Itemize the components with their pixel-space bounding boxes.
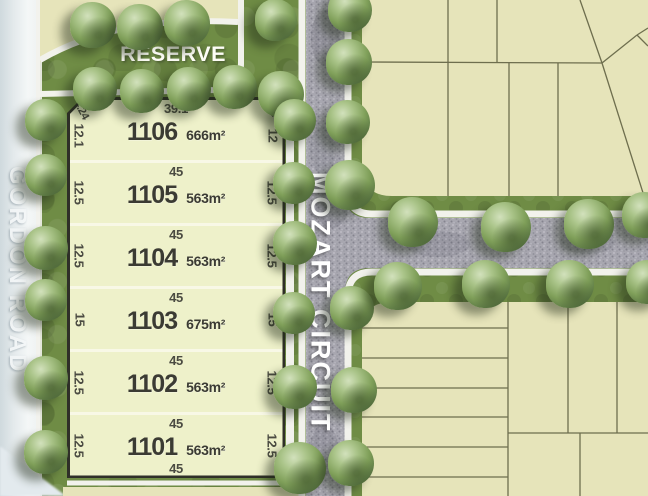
tree-icon <box>25 279 67 321</box>
tree-icon <box>331 367 377 413</box>
lot-1105[interactable]: 45 12.5 12.5 1105 563m² <box>70 163 283 223</box>
tree-icon <box>462 260 510 308</box>
lot-area: 666m² <box>186 127 225 143</box>
lot-area: 563m² <box>186 442 225 458</box>
dim-top: 45 <box>70 227 283 242</box>
lot-label: 1101 563m² <box>70 433 283 462</box>
dim-left: 12.5 <box>72 352 88 412</box>
tree-icon <box>564 199 614 249</box>
tree-icon <box>374 262 422 310</box>
tree-icon <box>25 99 67 141</box>
tree-icon <box>325 160 375 210</box>
dim-bottom: 45 <box>70 461 283 476</box>
lot-area: 675m² <box>186 316 225 332</box>
lot-label: 1103 675m² <box>70 307 283 336</box>
lot-block-sidewalk-east <box>286 92 294 484</box>
tree-icon <box>164 0 210 46</box>
lot-area: 563m² <box>186 379 225 395</box>
tree-icon <box>73 67 117 111</box>
tree-icon <box>255 0 297 41</box>
parcel-strip-south <box>63 487 301 496</box>
tree-icon <box>117 4 163 50</box>
dim-left: 12.5 <box>72 163 88 223</box>
parcel-region-northeast <box>362 0 648 196</box>
dim-left: 12.5 <box>72 226 88 286</box>
tree-icon <box>120 69 164 113</box>
subdivision-map: 39.1 4.24 4.24 12.1 12 1106 666m² 45 12.… <box>0 0 648 496</box>
tree-icon <box>273 221 317 265</box>
lot-label: 1104 563m² <box>70 244 283 273</box>
tree-icon <box>388 197 438 247</box>
tree-icon <box>326 100 370 144</box>
tree-icon <box>328 440 374 486</box>
lot-number: 1105 <box>127 181 177 210</box>
dim-top: 45 <box>70 290 283 305</box>
lot-block-1101-1106: 39.1 4.24 4.24 12.1 12 1106 666m² 45 12.… <box>67 97 285 478</box>
dim-top: 45 <box>70 353 283 368</box>
tree-icon <box>274 442 326 494</box>
lot-block-inner: 39.1 4.24 4.24 12.1 12 1106 666m² 45 12.… <box>70 100 283 476</box>
lot-label: 1105 563m² <box>70 181 283 210</box>
lot-1103[interactable]: 45 15 15 1103 675m² <box>70 289 283 349</box>
dim-top: 45 <box>70 164 283 179</box>
tree-icon <box>213 65 257 109</box>
lot-1101[interactable]: 45 12.5 12.5 1101 563m² 45 <box>70 415 283 475</box>
tree-icon <box>70 2 116 48</box>
tree-icon <box>481 202 531 252</box>
lot-number: 1102 <box>127 370 177 399</box>
dim-top: 45 <box>70 416 283 431</box>
tree-icon <box>546 260 594 308</box>
lot-number: 1103 <box>127 307 177 336</box>
tree-icon <box>273 162 315 204</box>
tree-icon <box>24 226 68 270</box>
lot-1102[interactable]: 45 12.5 12.5 1102 563m² <box>70 352 283 412</box>
lot-label: 1106 666m² <box>70 118 283 147</box>
lot-label: 1102 563m² <box>70 370 283 399</box>
tree-icon <box>273 292 315 334</box>
tree-icon <box>24 430 68 474</box>
tree-icon <box>24 356 68 400</box>
tree-icon <box>330 286 374 330</box>
lot-1104[interactable]: 45 12.5 12.5 1104 563m² <box>70 226 283 286</box>
tree-icon <box>326 39 372 85</box>
dim-left: 15 <box>72 289 88 349</box>
lot-area: 563m² <box>186 253 225 269</box>
tree-icon <box>167 67 211 111</box>
lot-area: 563m² <box>186 190 225 206</box>
lot-number: 1104 <box>127 244 177 273</box>
lot-number: 1101 <box>127 433 177 462</box>
lot-number: 1106 <box>127 118 177 147</box>
dim-left: 12.1 <box>72 112 88 160</box>
tree-icon <box>274 99 316 141</box>
tree-icon <box>25 154 67 196</box>
parcel-region-southeast <box>362 302 648 496</box>
tree-icon <box>273 365 317 409</box>
